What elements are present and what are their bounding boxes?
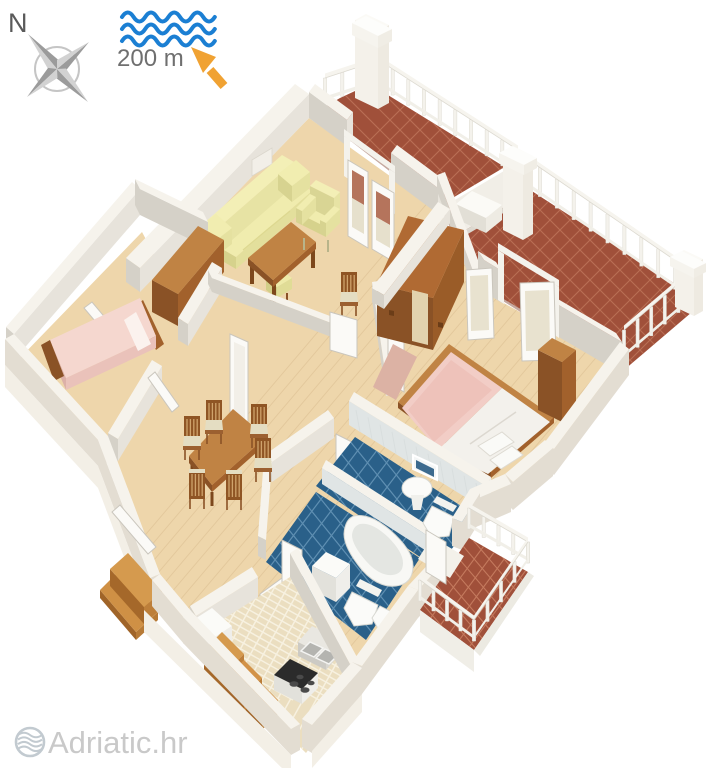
svg-text:N: N [8, 8, 28, 38]
svg-text:Adriatic.hr: Adriatic.hr [48, 725, 188, 760]
svg-text:200 m: 200 m [117, 45, 184, 72]
